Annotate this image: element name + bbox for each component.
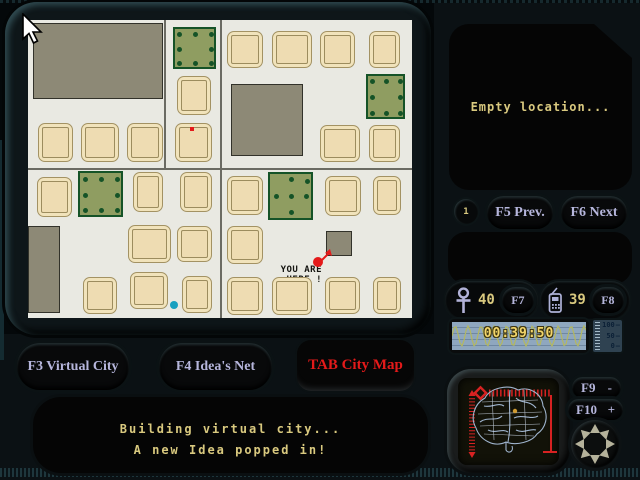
park-dot (115, 208, 120, 213)
park-dot (209, 32, 214, 37)
brain-screen (458, 378, 559, 465)
park-dot (289, 194, 294, 199)
building-house[interactable] (127, 123, 163, 162)
building-block[interactable] (28, 226, 60, 313)
cyan-marker (170, 301, 178, 309)
f10-zoom-in-button[interactable]: F10+ (568, 399, 623, 420)
park-dot (370, 95, 375, 100)
park-dot (83, 177, 88, 182)
game-screen: YOU AREHERE ! Empty location... 1 F5 Pre… (0, 0, 640, 480)
park-dot (384, 79, 389, 84)
mouse-cursor-icon (22, 13, 44, 45)
building-house[interactable] (227, 176, 263, 215)
building-park[interactable] (78, 171, 123, 217)
building-house[interactable] (177, 226, 212, 262)
brain-viewer-panel (447, 369, 570, 473)
building-house[interactable] (227, 31, 263, 68)
building-house[interactable] (369, 125, 400, 162)
park-dot (177, 32, 182, 37)
level-gauge: 100 50 0 (591, 318, 624, 354)
tab-city-map-active[interactable]: TAB City Map (297, 340, 414, 391)
street-line (220, 20, 222, 318)
building-house[interactable] (38, 123, 73, 162)
park-dot (274, 194, 279, 199)
building-house[interactable] (227, 277, 263, 315)
building-house[interactable] (83, 277, 117, 314)
f6-next-button[interactable]: F6 Next (561, 196, 627, 229)
location-info-panel: Empty location... (449, 24, 632, 190)
park-dot (398, 95, 403, 100)
building-house[interactable] (133, 172, 163, 212)
building-house[interactable] (272, 31, 312, 68)
new-idea-marker (190, 127, 194, 131)
street-line (164, 20, 166, 170)
building-house[interactable] (325, 277, 360, 314)
building-house[interactable] (227, 226, 263, 264)
park-dot (83, 208, 88, 213)
status-line-2: A new Idea popped in! (33, 443, 428, 457)
f5-prev-button[interactable]: F5 Prev. (487, 196, 553, 229)
building-park[interactable] (366, 74, 405, 119)
rotate-compass-button[interactable] (571, 420, 619, 468)
building-house[interactable] (320, 125, 360, 162)
building-house[interactable] (177, 76, 211, 115)
park-dot (384, 111, 389, 116)
location-message: Empty location... (449, 100, 632, 114)
status-message-panel: Building virtual city... A new Idea popp… (33, 397, 428, 473)
wireframe-brain-icon (458, 378, 559, 465)
park-dot (304, 194, 309, 199)
park-dot (289, 177, 294, 182)
building-house[interactable] (373, 176, 401, 215)
f8-button[interactable]: F8 (592, 287, 624, 313)
building-house[interactable] (272, 277, 312, 315)
park-dot (289, 210, 294, 215)
park-dot (99, 208, 104, 213)
building-house[interactable] (320, 31, 355, 68)
building-house[interactable] (37, 177, 72, 217)
gauge-label-0: 0 (602, 343, 620, 350)
f7-button[interactable]: F7 (502, 287, 534, 313)
timer-value: 00:39:50 (449, 326, 589, 341)
building-house[interactable] (325, 176, 361, 216)
minus-icon: - (608, 380, 612, 396)
building-block[interactable] (231, 84, 303, 156)
tab-ideas-net[interactable]: F4 Idea's Net (159, 343, 272, 390)
park-dot (305, 179, 310, 184)
park-dot (398, 111, 403, 116)
park-dot (398, 79, 403, 84)
tab-virtual-city[interactable]: F3 Virtual City (17, 343, 129, 390)
plus-icon: + (608, 402, 615, 418)
park-dot (177, 47, 182, 52)
building-block[interactable] (33, 23, 163, 99)
park-dot (99, 177, 104, 182)
park-dot (193, 32, 198, 37)
game-timer: 00:39:50 (449, 319, 589, 353)
park-dot (115, 177, 120, 182)
park-dot (209, 47, 214, 52)
gauge-label-100: 100 (602, 322, 620, 329)
park-dot (370, 79, 375, 84)
building-park[interactable] (268, 172, 313, 220)
building-house[interactable] (373, 277, 401, 314)
left-bezel-edge (0, 140, 4, 360)
ideas-count: 40 (478, 292, 495, 308)
secondary-display-panel (448, 232, 632, 284)
position-arrow-icon (320, 248, 334, 262)
location-index-button[interactable]: 1 (454, 199, 478, 224)
park-dot (83, 193, 88, 198)
building-house[interactable] (81, 123, 119, 162)
gauge-label-50: 50 (602, 333, 620, 340)
building-house[interactable] (369, 31, 400, 68)
f9-zoom-out-button[interactable]: F9- (572, 377, 621, 398)
phone-icon (547, 287, 563, 314)
park-dot (370, 111, 375, 116)
building-house[interactable] (182, 276, 212, 313)
ankh-icon (456, 287, 471, 314)
calls-count: 39 (569, 292, 586, 308)
park-dot (177, 61, 182, 66)
ideas-counter: 40 F7 (445, 281, 538, 319)
compass-arrows-icon (573, 422, 617, 466)
status-line-1: Building virtual city... (33, 422, 428, 436)
calls-counter: 39 F8 (540, 281, 630, 319)
park-dot (209, 61, 214, 66)
park-dot (193, 61, 198, 66)
building-park[interactable] (173, 27, 216, 69)
building-house[interactable] (128, 225, 171, 263)
park-dot (115, 193, 120, 198)
building-house[interactable] (180, 172, 212, 212)
city-map[interactable]: YOU AREHERE ! (28, 20, 412, 318)
building-house[interactable] (130, 272, 168, 309)
